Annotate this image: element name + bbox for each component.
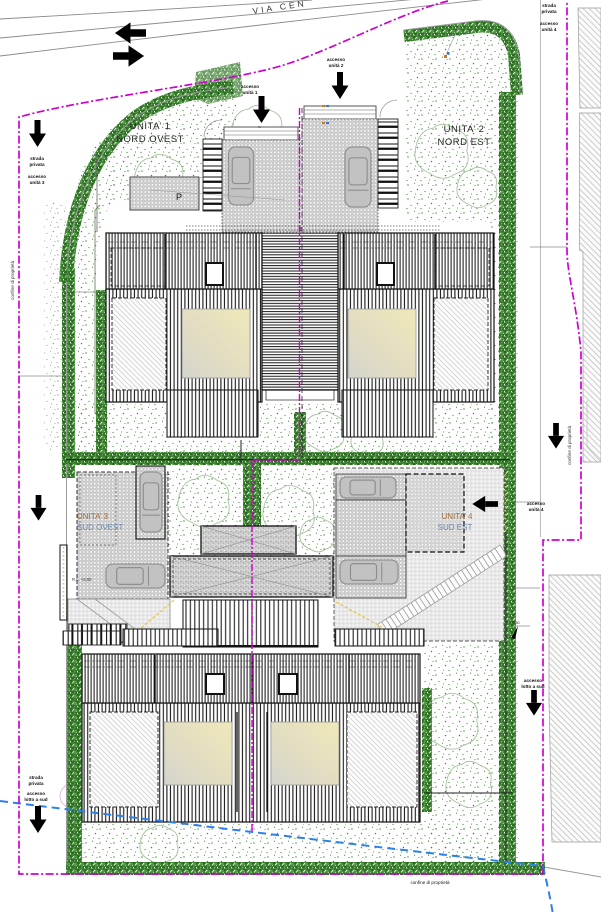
- svg-text:R.L. +3,00: R.L. +3,00: [72, 577, 92, 582]
- svg-text:UNITA’ 3: UNITA’ 3: [77, 512, 109, 521]
- svg-text:UNITA’ 1: UNITA’ 1: [130, 121, 171, 132]
- svg-text:NORD EST: NORD EST: [437, 137, 490, 148]
- svg-text:accesso: accesso: [540, 21, 558, 26]
- svg-text:strada: strada: [30, 156, 44, 161]
- svg-text:+0,30: +0,30: [510, 621, 520, 625]
- svg-text:privata: privata: [541, 9, 557, 14]
- svg-text:unità 4: unità 4: [529, 507, 544, 512]
- svg-text:lotto a sud: lotto a sud: [521, 684, 544, 689]
- svg-text:UNITA’ 2: UNITA’ 2: [444, 124, 485, 135]
- svg-text:confine di proprietà: confine di proprietà: [410, 880, 450, 885]
- svg-text:SUD EST: SUD EST: [438, 523, 473, 532]
- svg-text:accesso: accesso: [241, 84, 259, 89]
- svg-text:privata: privata: [29, 162, 45, 167]
- svg-text:unità 3: unità 3: [30, 180, 45, 185]
- svg-text:P: P: [176, 192, 182, 202]
- svg-text:confine di proprietà: confine di proprietà: [567, 425, 572, 465]
- svg-text:accesso: accesso: [28, 174, 46, 179]
- svg-text:unità 4: unità 4: [542, 27, 557, 32]
- svg-text:SUD OVEST: SUD OVEST: [77, 523, 123, 532]
- svg-text:strada: strada: [542, 3, 556, 8]
- svg-text:lotto a sud: lotto a sud: [24, 797, 47, 802]
- svg-text:privata: privata: [28, 781, 44, 786]
- svg-text:accesso: accesso: [524, 678, 542, 683]
- svg-text:unità 1: unità 1: [243, 90, 258, 95]
- svg-text:accesso: accesso: [27, 791, 45, 796]
- svg-text:NORD OVEST: NORD OVEST: [116, 134, 184, 145]
- svg-text:accesso: accesso: [327, 57, 345, 62]
- svg-text:confine di proprietà: confine di proprietà: [10, 260, 15, 300]
- svg-text:strada: strada: [29, 775, 43, 780]
- svg-text:unità 2: unità 2: [329, 63, 344, 68]
- svg-text:UNITA’ 4: UNITA’ 4: [442, 512, 474, 521]
